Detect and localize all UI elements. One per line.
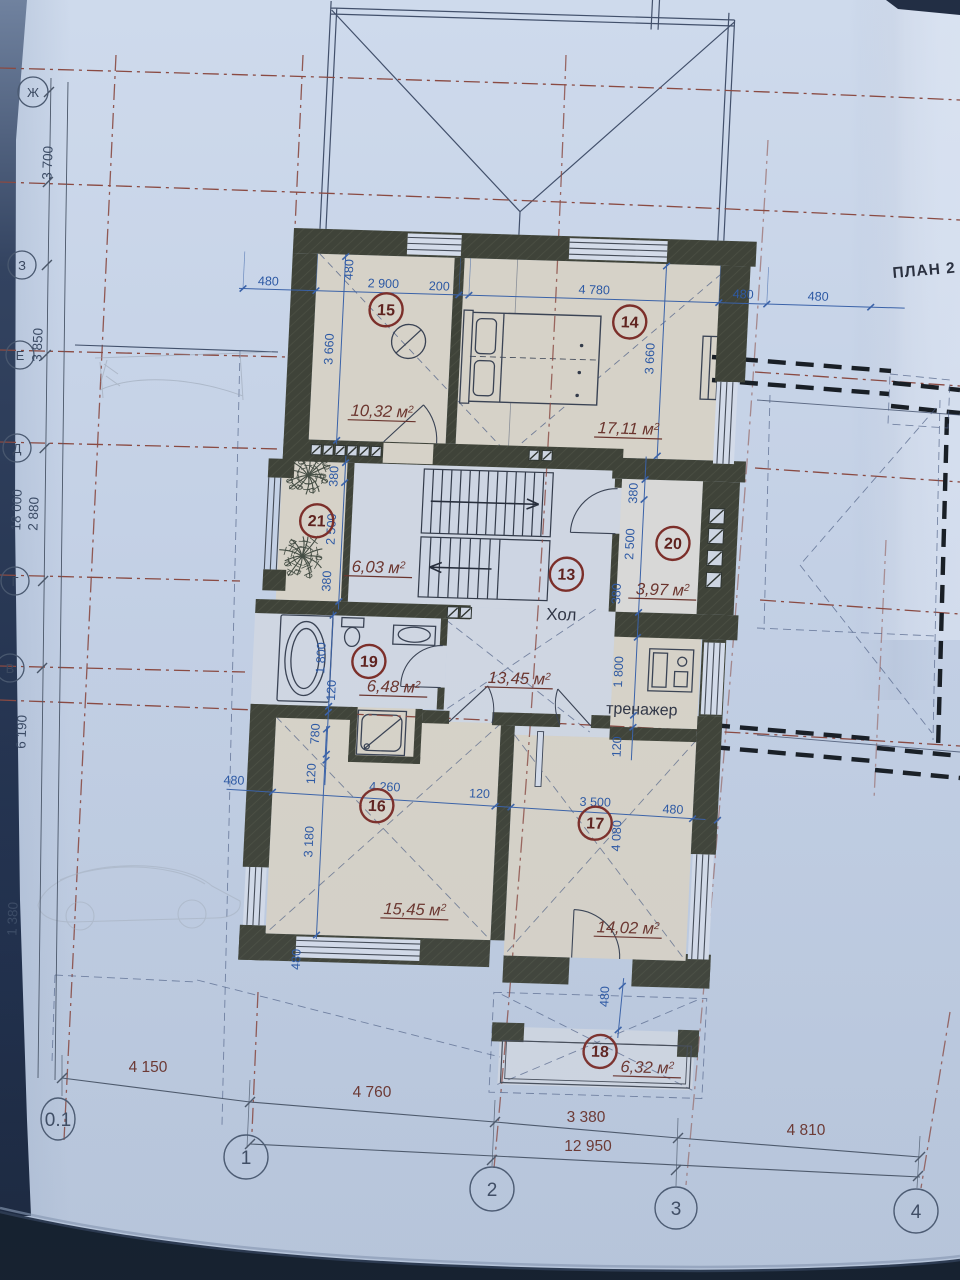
svg-text:2 500: 2 500 [622, 528, 638, 560]
svg-text:Д: Д [13, 441, 22, 456]
svg-text:Хол: Хол [546, 605, 577, 625]
svg-text:Е: Е [16, 348, 25, 363]
svg-text:480: 480 [258, 274, 280, 289]
svg-text:480: 480 [342, 259, 357, 280]
svg-text:2 880: 2 880 [25, 497, 41, 531]
svg-text:Ж: Ж [27, 85, 39, 100]
svg-text:380: 380 [319, 570, 334, 591]
svg-text:380: 380 [609, 583, 624, 604]
svg-text:15: 15 [377, 302, 396, 320]
svg-text:2 900: 2 900 [367, 276, 399, 291]
svg-text:13: 13 [557, 566, 576, 584]
svg-text:14: 14 [620, 314, 639, 332]
svg-text:3 850: 3 850 [29, 328, 45, 362]
svg-text:10,32 м2: 10,32 м2 [350, 402, 414, 422]
svg-text:Г: Г [11, 574, 18, 589]
svg-text:17,11 м2: 17,11 м2 [597, 419, 660, 439]
svg-text:3 660: 3 660 [321, 333, 337, 365]
svg-text:480: 480 [732, 287, 754, 302]
svg-text:6,03 м2: 6,03 м2 [351, 558, 406, 578]
svg-text:4 780: 4 780 [578, 282, 610, 297]
svg-text:3 660: 3 660 [642, 343, 658, 375]
svg-text:380: 380 [626, 483, 641, 504]
svg-text:200: 200 [429, 279, 451, 294]
svg-text:480: 480 [807, 289, 829, 304]
svg-text:3 700: 3 700 [39, 146, 55, 180]
svg-text:З: З [18, 258, 26, 273]
svg-text:380: 380 [326, 466, 341, 487]
svg-text:3,97 м2: 3,97 м2 [635, 580, 690, 600]
svg-text:20: 20 [664, 536, 683, 554]
svg-text:18 000: 18 000 [8, 489, 24, 531]
svg-text:21: 21 [307, 513, 326, 531]
